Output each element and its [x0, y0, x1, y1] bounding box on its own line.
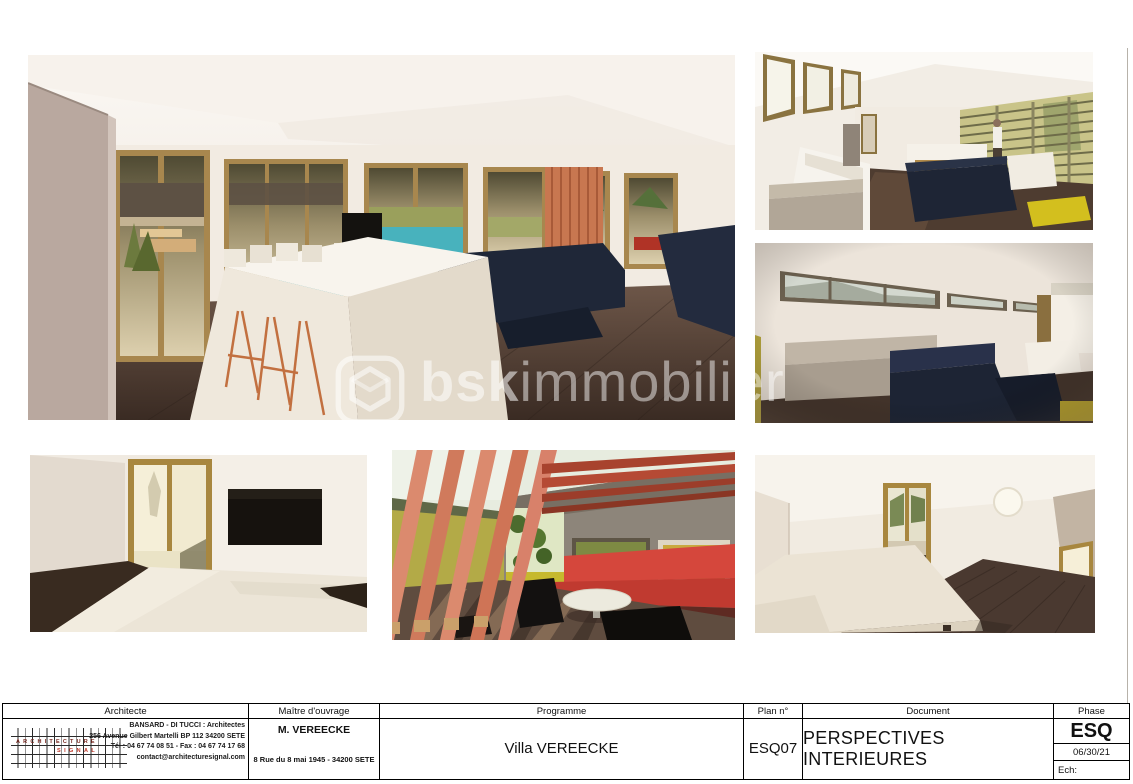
- render-bedroom-porthole: [755, 455, 1095, 633]
- architect-body: ARCHITECTURE SIGNAL BANSARD - DI TUCCI :…: [3, 719, 248, 779]
- living-room-illustration: [28, 55, 735, 420]
- plan-no-body: ESQ07: [744, 719, 802, 779]
- programme-value: Villa VEREECKE: [380, 719, 743, 779]
- render-living-dining-room: [28, 55, 735, 420]
- render-terrace-pergola: [392, 450, 735, 640]
- architect-contact-info: BANSARD - DI TUCCI : Architectes 256 Ave…: [89, 721, 245, 763]
- client-body: M. VEREECKE 8 Rue du 8 mai 1945 - 34200 …: [249, 719, 379, 779]
- client-address: 8 Rue du 8 mai 1945 - 34200 SETE: [249, 755, 379, 764]
- bedroom-porthole-illustration: [755, 455, 1095, 633]
- logo-word-architecture: ARCHITECTURE: [16, 739, 98, 745]
- terrace-illustration: [392, 450, 735, 640]
- phase-date: 06/30/21: [1054, 744, 1129, 761]
- programme-header: Programme: [380, 704, 743, 719]
- phase-header: Phase: [1054, 704, 1129, 719]
- document-header: Document: [803, 704, 1053, 719]
- plan-no-header: Plan n°: [744, 704, 802, 719]
- document-value: PERSPECTIVES INTERIEURES: [803, 719, 1053, 779]
- architect-phone-line: Tél : 04 67 74 08 51 - Fax : 04 67 74 17…: [89, 742, 245, 753]
- phase-body: ESQ 06/30/21 Ech:: [1054, 719, 1129, 779]
- render-mezzanine-lounge: [755, 52, 1093, 230]
- title-block-architect-column: Architecte ARCHITECTURE SIGNAL BANSARD -…: [3, 704, 249, 779]
- bedroom-tv-illustration: [30, 455, 367, 632]
- drawing-sheet: bskimmobilier Architecte ARCHITECTURE SI…: [0, 0, 1133, 784]
- title-block: Architecte ARCHITECTURE SIGNAL BANSARD -…: [2, 703, 1130, 780]
- render-bedroom-tv: [30, 455, 367, 632]
- document-body: PERSPECTIVES INTERIEURES: [803, 719, 1053, 779]
- phase-code: ESQ: [1054, 719, 1129, 744]
- programme-body: Villa VEREECKE: [380, 719, 743, 779]
- architect-header: Architecte: [3, 704, 248, 719]
- title-block-programme-column: Programme Villa VEREECKE: [380, 704, 744, 779]
- client-name: M. VEREECKE: [249, 724, 379, 736]
- title-block-phase-column: Phase ESQ 06/30/21 Ech:: [1054, 704, 1129, 779]
- phase-scale-label: Ech:: [1054, 761, 1129, 779]
- architect-email-line: contact@architecturesignal.com: [89, 753, 245, 764]
- render-clerestory-lounge: [755, 243, 1093, 423]
- title-block-document-column: Document PERSPECTIVES INTERIEURES: [803, 704, 1054, 779]
- mezzanine-illustration: [755, 52, 1093, 230]
- title-block-plan-column: Plan n° ESQ07: [744, 704, 803, 779]
- architect-name-line: BANSARD - DI TUCCI : Architectes: [89, 721, 245, 732]
- sheet-frame-right-edge: [1127, 48, 1128, 703]
- architect-address-line: 256 Avenue Gilbert Martelli BP 112 34200…: [89, 732, 245, 743]
- client-header: Maître d'ouvrage: [249, 704, 379, 719]
- clerestory-lounge-illustration: [755, 243, 1093, 423]
- plan-no-value: ESQ07: [744, 719, 802, 779]
- title-block-client-column: Maître d'ouvrage M. VEREECKE 8 Rue du 8 …: [249, 704, 380, 779]
